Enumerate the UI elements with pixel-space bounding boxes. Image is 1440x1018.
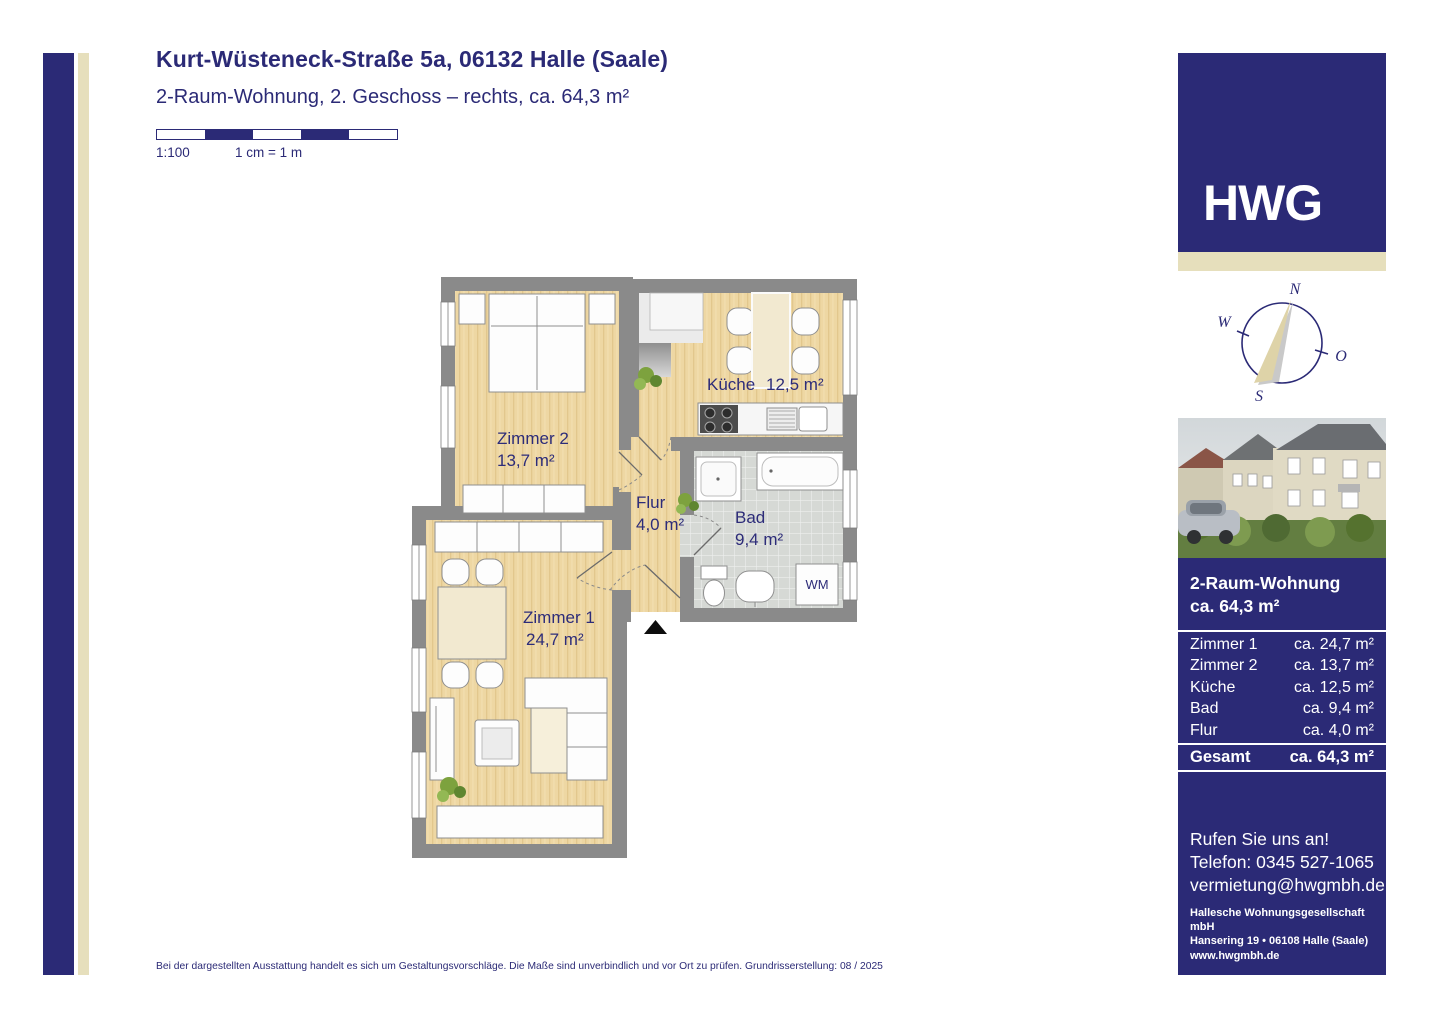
- row-value: ca. 9,4 m²: [1303, 698, 1374, 719]
- table-row-total: Gesamt ca. 64,3 m²: [1178, 745, 1386, 770]
- room-label-zimmer2: Zimmer 2: [497, 429, 569, 448]
- scale-segment: [253, 130, 301, 139]
- chair: [727, 347, 754, 374]
- page-title: Kurt-Wüsteneck-Straße 5a, 06132 Halle (S…: [156, 46, 668, 73]
- compass-west: W: [1217, 314, 1232, 331]
- chair: [727, 308, 754, 335]
- contact-block: Rufen Sie uns an! Telefon: 0345 527-1065…: [1178, 828, 1386, 975]
- contact-phone: Telefon: 0345 527-1065: [1190, 851, 1374, 874]
- toilet-cistern: [701, 566, 727, 579]
- table-row: Zimmer 1 ca. 24,7 m²: [1178, 634, 1386, 655]
- contact-address: Hansering 19 • 06108 Halle (Saale): [1190, 934, 1374, 948]
- row-label: Zimmer 2: [1190, 655, 1258, 676]
- chair: [476, 559, 503, 585]
- compass-south: S: [1255, 388, 1263, 405]
- row-label: Küche: [1190, 677, 1235, 698]
- table-row: Flur ca. 4,0 m²: [1178, 720, 1386, 741]
- floor-plan: WM: [405, 270, 865, 865]
- table-row: Zimmer 2 ca. 13,7 m²: [1178, 655, 1386, 676]
- compass-north: N: [1289, 281, 1302, 298]
- total-label: Gesamt: [1190, 746, 1251, 769]
- lowboard: [437, 806, 603, 838]
- dining-table: [438, 587, 506, 659]
- table-row: Küche ca. 12,5 m²: [1178, 677, 1386, 698]
- scale-segment: [205, 130, 253, 139]
- hwg-logo: HWG: [1178, 53, 1386, 252]
- sideboard: [463, 485, 585, 513]
- row-value: ca. 13,7 m²: [1294, 655, 1374, 676]
- contact-company: Hallesche Wohnungsgesellschaft mbH: [1190, 906, 1374, 935]
- dining-table: [752, 293, 790, 388]
- contact-website: www.hwgmbh.de: [1190, 949, 1374, 963]
- room-area-zimmer2: 13,7 m²: [497, 451, 555, 470]
- footer-disclaimer: Bei der dargestellten Ausstattung handel…: [156, 961, 896, 972]
- room-area-flur: 4,0 m²: [636, 515, 685, 534]
- nightstand: [589, 294, 615, 324]
- chair: [792, 347, 819, 374]
- chair: [792, 308, 819, 335]
- scale-labels: 1:100 1 cm = 1 m: [156, 145, 456, 163]
- total-value: ca. 64,3 m²: [1290, 746, 1374, 769]
- scale-segment: [349, 130, 397, 139]
- left-stripe-beige: [78, 53, 89, 975]
- scale-bar: [156, 129, 398, 140]
- room-label-kueche: Küche: [707, 375, 755, 394]
- scale-legend: 1 cm = 1 m: [235, 145, 302, 160]
- chair: [442, 559, 469, 585]
- row-label: Flur: [1190, 720, 1218, 741]
- contact-cta: Rufen Sie uns an!: [1190, 828, 1374, 851]
- building-photo: [1178, 418, 1386, 558]
- scale-segment: [157, 130, 205, 139]
- compass-rose: N W O S: [1178, 271, 1386, 418]
- scale-segment: [301, 130, 349, 139]
- toilet-bowl: [704, 580, 725, 606]
- sidebar: HWG N W O S: [1178, 53, 1386, 975]
- scale-ratio: 1:100: [156, 145, 190, 160]
- listing-title-line2: ca. 64,3 m²: [1190, 595, 1374, 618]
- row-value: ca. 24,7 m²: [1294, 634, 1374, 655]
- coffee-table: [531, 707, 567, 773]
- chair: [442, 662, 469, 688]
- row-value: ca. 12,5 m²: [1294, 677, 1374, 698]
- listing-title: 2-Raum-Wohnung ca. 64,3 m²: [1178, 558, 1386, 630]
- room-label-flur: Flur: [636, 493, 666, 512]
- niche-shelf: [650, 293, 703, 330]
- compass-east: O: [1335, 348, 1347, 365]
- contact-email: vermietung@hwgmbh.de: [1190, 874, 1374, 897]
- tall-cabinet: [430, 698, 454, 780]
- wall-stub: [671, 437, 695, 451]
- spacer: [1178, 772, 1386, 828]
- room-label-zimmer1: Zimmer 1: [523, 608, 595, 627]
- room-area-zimmer1: 24,7 m²: [526, 630, 584, 649]
- room-area-kueche: 12,5 m²: [766, 375, 824, 394]
- area-table: Zimmer 1 ca. 24,7 m² Zimmer 2 ca. 13,7 m…: [1178, 632, 1386, 743]
- page-subtitle: 2-Raum-Wohnung, 2. Geschoss – rechts, ca…: [156, 86, 629, 109]
- room-label-bad: Bad: [735, 508, 765, 527]
- table-row: Bad ca. 9,4 m²: [1178, 698, 1386, 719]
- door-opening-zimmer2: [619, 450, 631, 492]
- listing-info-panel: 2-Raum-Wohnung ca. 64,3 m² Zimmer 1 ca. …: [1178, 558, 1386, 975]
- row-label: Zimmer 1: [1190, 634, 1258, 655]
- sink-basin: [799, 407, 827, 431]
- room-area-bad: 9,4 m²: [735, 530, 784, 549]
- chair: [476, 662, 503, 688]
- left-stripe-navy: [43, 53, 74, 975]
- listing-title-line1: 2-Raum-Wohnung: [1190, 572, 1374, 595]
- hwg-logo-text: HWG: [1203, 174, 1322, 232]
- row-label: Bad: [1190, 698, 1218, 719]
- nightstand: [459, 294, 485, 324]
- row-value: ca. 4,0 m²: [1303, 720, 1374, 741]
- logo-beige-strip: [1178, 252, 1386, 271]
- washing-machine-label: WM: [805, 577, 828, 592]
- washbasin: [736, 571, 774, 602]
